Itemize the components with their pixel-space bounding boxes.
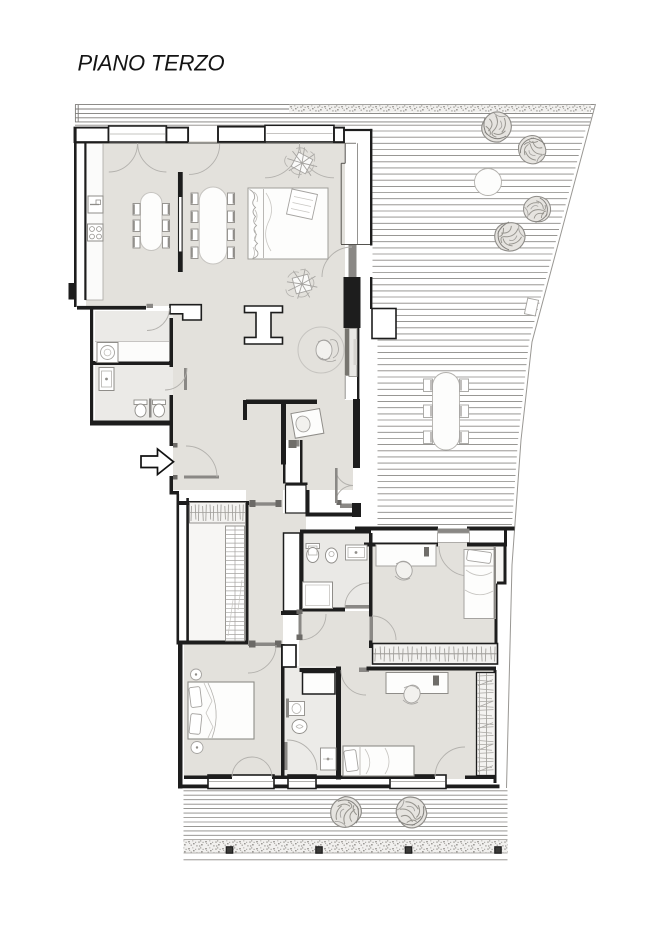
- svg-text:PIANO TERZO: PIANO TERZO: [78, 51, 225, 76]
